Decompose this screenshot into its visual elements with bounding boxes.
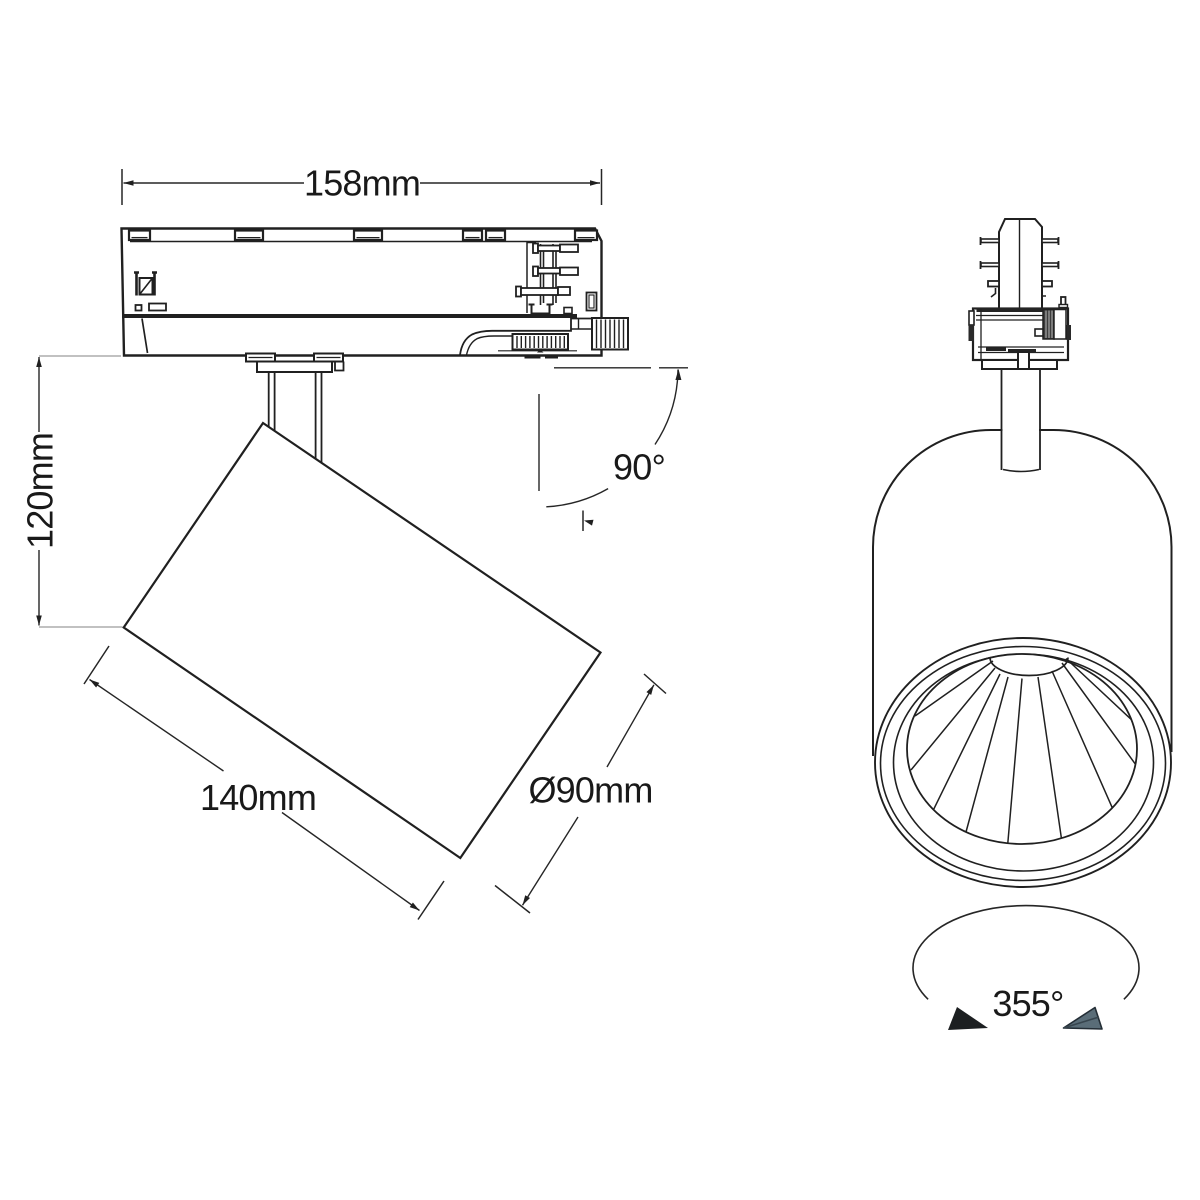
svg-text:158mm: 158mm	[304, 163, 420, 204]
svg-text:90°: 90°	[613, 447, 665, 488]
svg-text:140mm: 140mm	[200, 777, 316, 818]
svg-text:355°: 355°	[992, 983, 1063, 1024]
svg-text:120mm: 120mm	[20, 433, 61, 549]
svg-text:Ø90mm: Ø90mm	[528, 770, 652, 811]
